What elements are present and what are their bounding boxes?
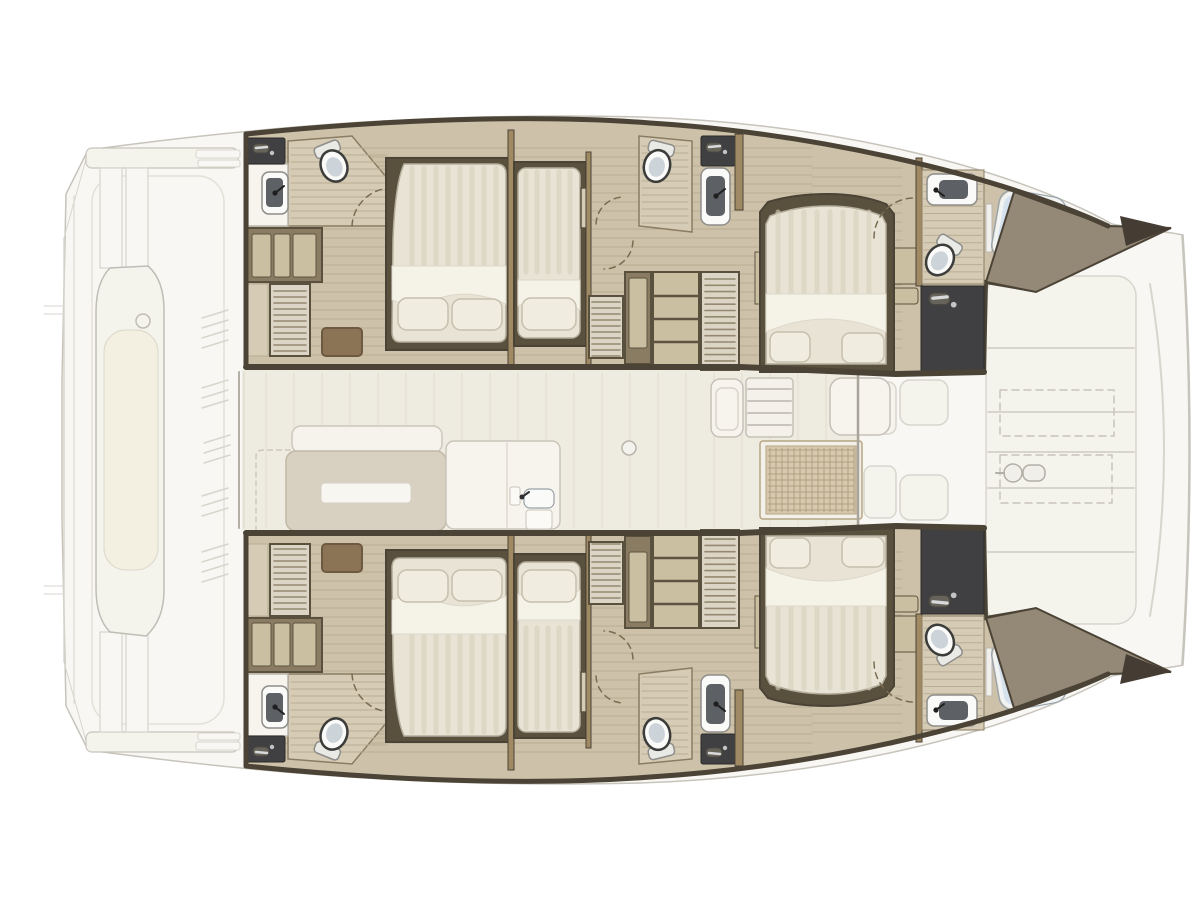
foredeck-sunpad-panel (986, 276, 1136, 624)
inboard-tall-cabinet-door (629, 552, 647, 622)
davit-arm (100, 168, 122, 268)
bedside-mat (322, 544, 362, 572)
cockpit-step (196, 150, 240, 158)
windlass-body (1023, 465, 1045, 481)
davit-arm (126, 168, 148, 268)
door-handle-knob (270, 745, 274, 749)
yacht-floor-plan-image: Catamaran yacht interior floor plan (top… (0, 0, 1200, 900)
pillow (452, 570, 502, 601)
wardrobe-slat (293, 623, 316, 666)
door-handle-lever (256, 147, 267, 148)
cockpit-step (198, 733, 240, 740)
cockpit-step (196, 742, 240, 750)
pillow (398, 298, 448, 330)
sofa-backrest (292, 426, 442, 453)
fwd-cockpit-seat (864, 466, 896, 518)
inboard-locker-louvers-b (705, 279, 735, 367)
ceiling-light (622, 441, 636, 455)
galley-counter-fwd (830, 378, 890, 435)
davit-arm (100, 632, 122, 732)
wardrobe-slat (274, 623, 290, 666)
fwd-cabin-wall (916, 614, 922, 742)
pillow (522, 570, 576, 602)
wardrobe-slat (293, 234, 316, 277)
locker-side-floor (246, 284, 268, 356)
door-handle-lever (709, 753, 720, 754)
door-handle-knob (951, 592, 957, 598)
pillow (842, 537, 884, 567)
bedside-mat (322, 328, 362, 356)
pillow (770, 332, 810, 362)
transom-tick (44, 306, 64, 314)
door-handle-knob (270, 151, 274, 155)
galley-panel (510, 487, 520, 505)
fwd-cockpit-bench (900, 475, 948, 520)
dinghy-interior (104, 330, 158, 570)
windlass-drum (1004, 464, 1022, 482)
inboard-locker-louvers-b (705, 533, 735, 621)
salon-table (321, 483, 411, 503)
cockpit-step (198, 160, 240, 167)
fwd-cockpit-bench (900, 380, 948, 425)
wardrobe-slat (274, 234, 290, 277)
door-handle-knob (723, 150, 727, 154)
wardrobe-slat (252, 623, 271, 666)
mid-head-wall (735, 690, 743, 766)
inboard-locker-louver (589, 296, 623, 358)
wardrobe-slat (252, 234, 271, 277)
inboard-tall-cabinet-door (629, 278, 647, 348)
door-handle-lever (256, 752, 267, 753)
locker-side-floor (246, 544, 268, 616)
companionway-stairs (746, 378, 793, 437)
mid-head-wall (735, 134, 743, 210)
pillow (770, 538, 810, 568)
salon (239, 370, 890, 531)
door-handle-lever (709, 146, 720, 147)
door-handle-knob (951, 302, 957, 308)
galley-fridge-front (526, 510, 552, 529)
inboard-locker-louver (589, 542, 623, 604)
door-handle-lever (933, 297, 947, 298)
door-handle-knob (723, 746, 727, 750)
transom-tick (44, 586, 64, 594)
davit-arm (126, 632, 148, 732)
pillow (452, 299, 502, 330)
fwd-cabin-wall (916, 158, 922, 286)
pillow (842, 333, 884, 363)
pillow (398, 570, 448, 602)
pillow (522, 298, 576, 330)
door-handle-lever (933, 602, 947, 603)
floor-plan-canvas (0, 0, 1200, 900)
